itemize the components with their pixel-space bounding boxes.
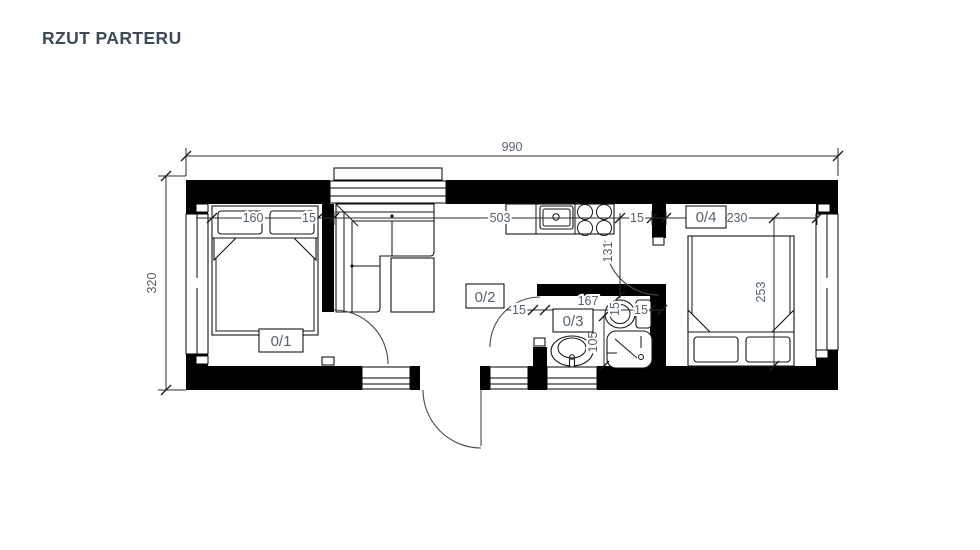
window-left [186, 214, 208, 354]
door-hinge [322, 357, 334, 365]
kitchen-counter-symbol [506, 204, 614, 236]
dim-bath-wall-right: 15 [634, 303, 648, 317]
dim-bedroom-width: 230 [727, 211, 748, 225]
window-bottom-2 [490, 367, 528, 389]
coffee-table-symbol [391, 258, 434, 312]
window-right [816, 214, 838, 350]
dim-wall-a: 15 [302, 211, 316, 225]
dim-passage-depth: 131 [601, 242, 615, 263]
dim-total-height: 320 [145, 273, 159, 294]
room-label-0-1: 0/1 [259, 329, 303, 352]
double-bed-room1-symbol [212, 206, 318, 335]
door-hinge [534, 338, 545, 346]
door-hinge [653, 237, 664, 245]
shower-symbol [607, 331, 652, 368]
dim-wall-b: 15 [630, 211, 644, 225]
window-top [330, 168, 446, 203]
dim-bath-wall-left: 15 [512, 303, 526, 317]
window-bottom-1 [362, 367, 410, 389]
floor-plan-drawing: 990 320 160 15 503 15 230 131 15 167 15 … [0, 0, 980, 550]
window-bottom-3 [547, 367, 597, 389]
wall-notch [196, 356, 208, 364]
room-label-0-4: 0/4 [686, 206, 726, 228]
floor-plan-page: RZUT PARTERU [0, 0, 980, 550]
door-arc-room1 [334, 310, 388, 364]
wall-notch [816, 350, 828, 358]
dim-bedroom-depth: 253 [754, 282, 768, 303]
wall-notch [196, 204, 208, 212]
dim-living-width: 503 [490, 211, 511, 225]
room-label-0-2: 0/2 [466, 284, 504, 308]
svg-text:0/3: 0/3 [563, 313, 584, 330]
dim-bath-wall-right-rot: 15 [608, 302, 622, 316]
wall-notch [818, 204, 830, 212]
dim-bed-width: 160 [243, 211, 264, 225]
svg-text:0/2: 0/2 [475, 289, 496, 306]
dim-bath-width: 167 [578, 294, 599, 308]
entrance-door [423, 390, 481, 448]
dim-total-width: 990 [502, 140, 523, 154]
double-bed-room4-symbol [688, 236, 794, 366]
dim-shower-depth: 105 [586, 332, 600, 353]
svg-text:0/1: 0/1 [271, 333, 292, 350]
svg-text:0/4: 0/4 [696, 209, 717, 226]
room-label-0-3: 0/3 [553, 309, 593, 332]
